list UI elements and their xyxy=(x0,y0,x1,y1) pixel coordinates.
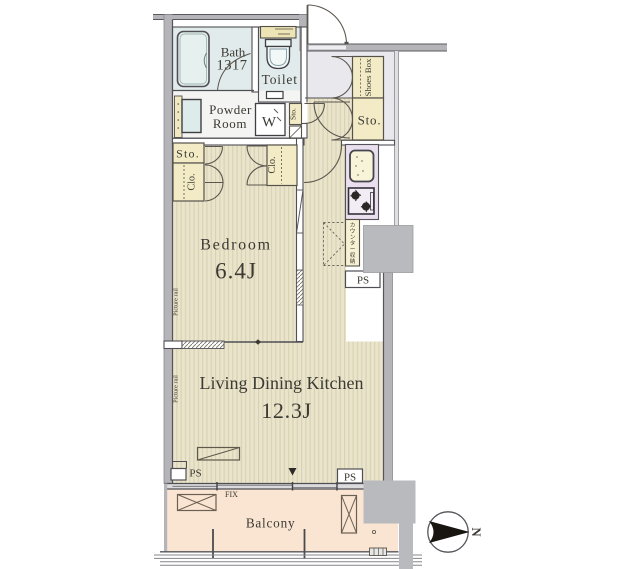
svg-text:Living Dining Kitchen: Living Dining Kitchen xyxy=(200,373,364,393)
svg-text:カウンター収納: カウンター収納 xyxy=(350,222,356,265)
svg-text:W: W xyxy=(262,115,277,131)
svg-text:PS: PS xyxy=(344,471,356,483)
svg-text:Picture rail: Picture rail xyxy=(173,375,180,403)
svg-text:Powder: Powder xyxy=(209,102,252,117)
svg-text:Sto.: Sto. xyxy=(358,113,382,128)
svg-text:6.4J: 6.4J xyxy=(215,258,257,283)
svg-text:FIX: FIX xyxy=(225,490,238,499)
svg-text:Room: Room xyxy=(213,116,247,131)
svg-text:12.3J: 12.3J xyxy=(261,398,312,423)
svg-text:Bedroom: Bedroom xyxy=(200,237,271,254)
svg-text:PS: PS xyxy=(357,275,369,287)
svg-text:Clo.: Clo. xyxy=(267,157,278,174)
svg-text:N: N xyxy=(469,527,483,536)
svg-text:Shoes Box: Shoes Box xyxy=(363,58,373,96)
svg-text:1317: 1317 xyxy=(217,58,248,74)
svg-text:Sto.: Sto. xyxy=(176,147,200,161)
svg-text:Balcony: Balcony xyxy=(246,516,296,531)
svg-text:Picture rail: Picture rail xyxy=(173,288,180,316)
svg-text:Sto.: Sto. xyxy=(289,108,298,120)
svg-text:PS: PS xyxy=(189,468,201,480)
svg-text:Toilet: Toilet xyxy=(262,72,298,87)
svg-text:Clo.: Clo. xyxy=(187,174,198,191)
